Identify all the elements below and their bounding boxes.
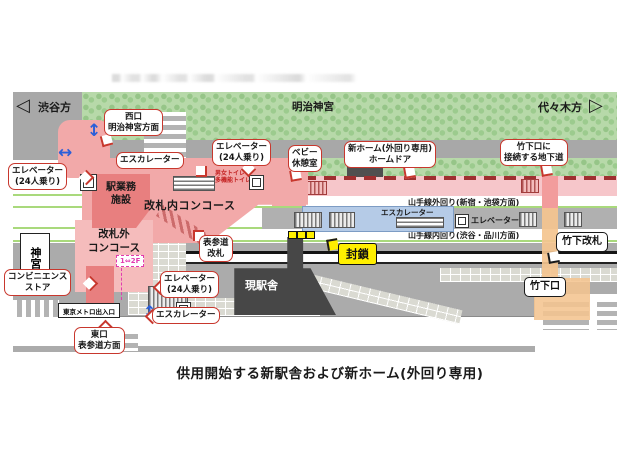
stairs-icon — [521, 179, 539, 193]
callout-new-platform: 新ホーム(外回り専用) ホームドア — [344, 141, 436, 168]
escalator-icon — [396, 217, 444, 228]
callout-tail — [547, 251, 560, 264]
floor-link-path — [121, 268, 122, 300]
callout-tail — [403, 166, 416, 179]
inside-concourse-label: 改札内コンコース — [144, 197, 235, 213]
callout-elevator-east: エレベーター (24人乗り) — [160, 271, 219, 298]
callout-elevator-west: エレベーター (24人乗り) — [8, 163, 67, 190]
callout-takeshita-passage: 竹下口に 接続する地下道 — [500, 139, 568, 166]
elevator-icon — [249, 175, 264, 190]
stairs-icon — [294, 212, 322, 228]
stairs-icon — [519, 212, 537, 227]
crosswalk-left — [13, 300, 59, 317]
faint-artifact-text — [112, 74, 447, 82]
platform-doors — [284, 176, 617, 180]
callout-tail — [196, 166, 207, 177]
outside-concourse-label: 改札外 コンコース — [72, 228, 156, 255]
sealed-mark — [306, 231, 315, 239]
left-direction-icon: ◁ — [16, 95, 30, 116]
stairs-icon — [564, 212, 582, 227]
callout-tail — [540, 164, 553, 177]
passage-to-takeshita — [542, 176, 558, 210]
escalator-icon — [173, 176, 215, 191]
platform-elevator-label: エレベーター — [471, 215, 519, 226]
callout-omotesando-gate: 表参道 改札 — [199, 235, 233, 262]
callout-convenience-store: コンビニエンス ストア — [4, 269, 71, 296]
yoyogi-direction-label: 代々木方 — [538, 99, 582, 115]
callout-escalator-west: エスカレーター — [116, 152, 184, 169]
shibuya-direction-label: 渋谷方 — [38, 99, 71, 115]
callout-west-exit: 西口 明治神宮方面 — [104, 109, 163, 136]
sealed-callout: 封鎖 — [338, 243, 377, 265]
callout-baby-room: ベビー 休憩室 — [288, 145, 322, 172]
callout-tail — [326, 238, 339, 251]
callout-elevator-center: エレベーター (24人乗り) — [212, 139, 271, 166]
callout-escalator-east: エスカレーター — [152, 307, 220, 324]
callout-takeshita-exit: 竹下口 — [524, 277, 566, 297]
callout-east-exit: 東口 表参道方面 — [74, 327, 125, 354]
floor-link-note: 1⇔2F — [116, 255, 144, 267]
station-office-label: 駅業務 施設 — [96, 182, 146, 207]
left-right-arrow-icon: ↔ — [58, 145, 72, 162]
metro-entrance-label: 東京メトロ出入口 — [58, 303, 120, 318]
forest-label: 明治神宮 — [292, 99, 334, 114]
crosswalk-far-right — [597, 298, 617, 330]
right-direction-icon: ▷ — [589, 95, 603, 116]
station-map: 明治神宮 ◁ 渋谷方 代々木方 ▷ 山手線外回り(新宿・池袋方面) 山手線内回り… — [0, 0, 628, 471]
sealed-mark — [297, 231, 306, 239]
elevator-icon — [455, 214, 469, 228]
current-station-label: 現駅舎 — [245, 277, 278, 293]
sealed-mark — [288, 231, 297, 239]
callout-takeshita-gate: 竹下改札 — [556, 232, 608, 252]
caption: 供用開始する新駅舎および新ホーム(外回り専用) — [130, 362, 530, 382]
stairs-icon — [329, 212, 355, 228]
